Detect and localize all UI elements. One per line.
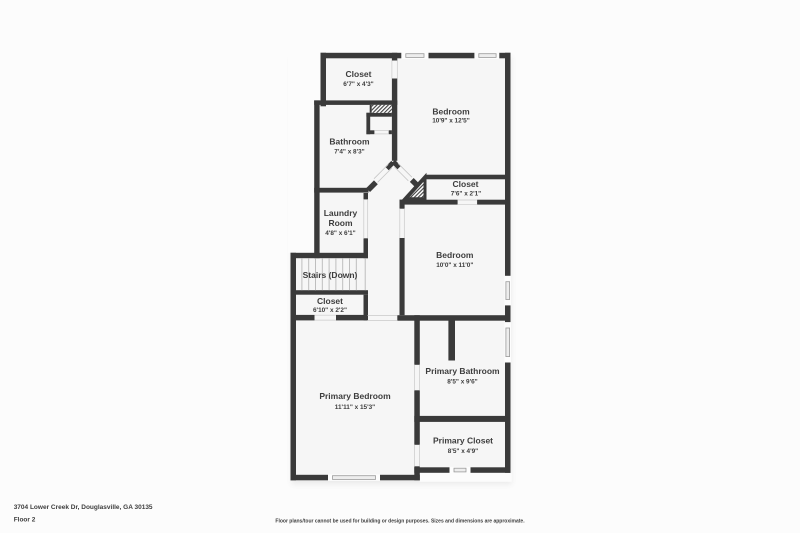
svg-text:10'0" x 11'0": 10'0" x 11'0" bbox=[436, 262, 473, 269]
svg-text:11'11" x 15'3": 11'11" x 15'3" bbox=[335, 404, 375, 411]
svg-text:Room: Room bbox=[328, 218, 353, 228]
svg-text:4'8" x 6'1": 4'8" x 6'1" bbox=[325, 230, 355, 237]
svg-text:Closet: Closet bbox=[317, 296, 343, 306]
svg-text:8'5" x 4'9": 8'5" x 4'9" bbox=[448, 448, 478, 455]
svg-text:7'4" x 8'3": 7'4" x 8'3" bbox=[334, 148, 364, 155]
svg-text:Primary Closet: Primary Closet bbox=[433, 436, 493, 446]
svg-text:Bedroom: Bedroom bbox=[432, 107, 470, 117]
svg-text:Bedroom: Bedroom bbox=[436, 250, 474, 260]
svg-text:10'9" x 12'5": 10'9" x 12'5" bbox=[432, 117, 470, 124]
svg-text:Floor 2: Floor 2 bbox=[14, 516, 36, 523]
svg-text:6'7" x 4'3": 6'7" x 4'3" bbox=[343, 81, 373, 88]
svg-text:Primary Bedroom: Primary Bedroom bbox=[319, 391, 391, 401]
svg-text:Bathroom: Bathroom bbox=[329, 137, 370, 147]
svg-text:3704 Lower Creek Dr, Douglasvi: 3704 Lower Creek Dr, Douglasville, GA 30… bbox=[14, 504, 153, 511]
svg-text:Closet: Closet bbox=[453, 179, 479, 189]
svg-text:Primary Bathroom: Primary Bathroom bbox=[425, 366, 500, 376]
svg-text:6'10" x 2'2": 6'10" x 2'2" bbox=[313, 307, 347, 314]
svg-text:8'5" x 9'6": 8'5" x 9'6" bbox=[447, 378, 477, 385]
svg-text:7'6" x 2'1": 7'6" x 2'1" bbox=[451, 191, 481, 198]
svg-text:Floor plans/tour cannot be use: Floor plans/tour cannot be used for buil… bbox=[275, 518, 525, 524]
svg-text:Stairs (Down): Stairs (Down) bbox=[303, 270, 358, 280]
svg-text:Closet: Closet bbox=[346, 69, 372, 79]
svg-text:Laundry: Laundry bbox=[324, 208, 358, 218]
